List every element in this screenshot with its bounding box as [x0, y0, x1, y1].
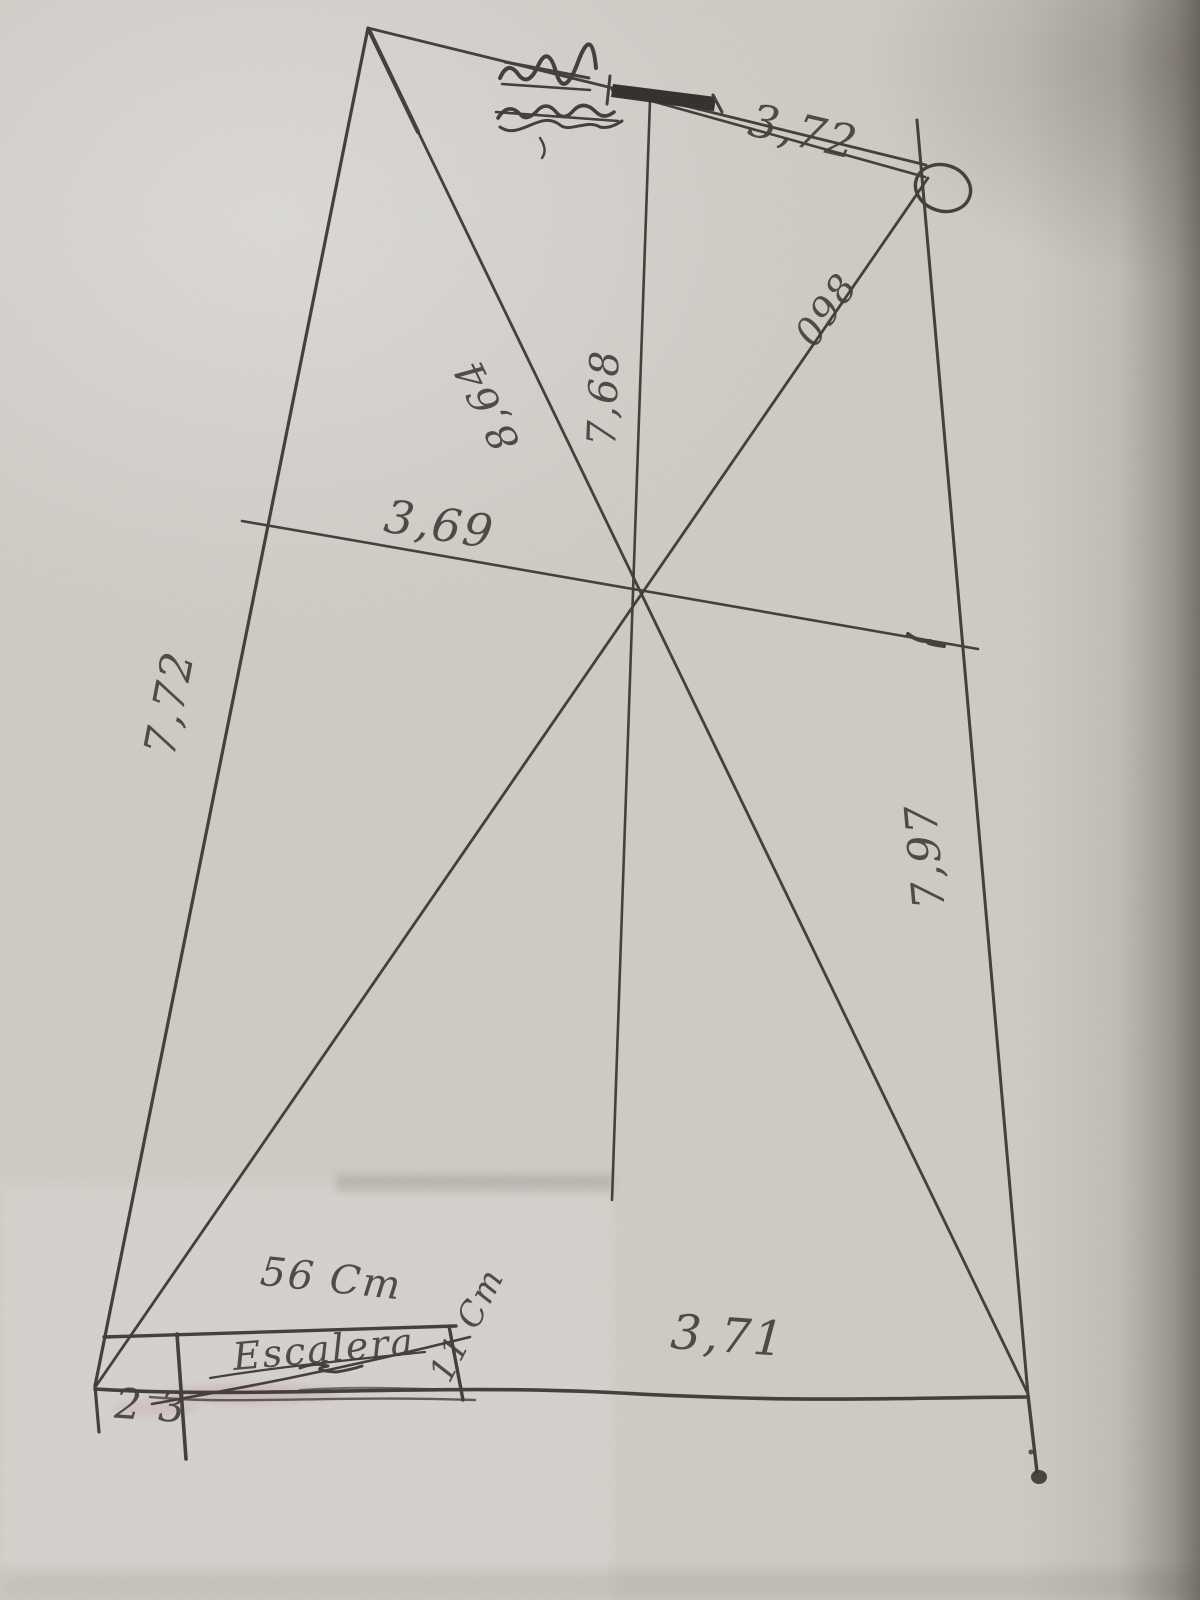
sketch-canvas: 3,72 098 8,64 7,68 3,69 7,72 7,97 3,71 5… [0, 0, 1200, 1600]
paper-grain [0, 0, 1200, 1600]
scanned-survey-sketch: 3,72 098 8,64 7,68 3,69 7,72 7,97 3,71 5… [0, 0, 1200, 1600]
